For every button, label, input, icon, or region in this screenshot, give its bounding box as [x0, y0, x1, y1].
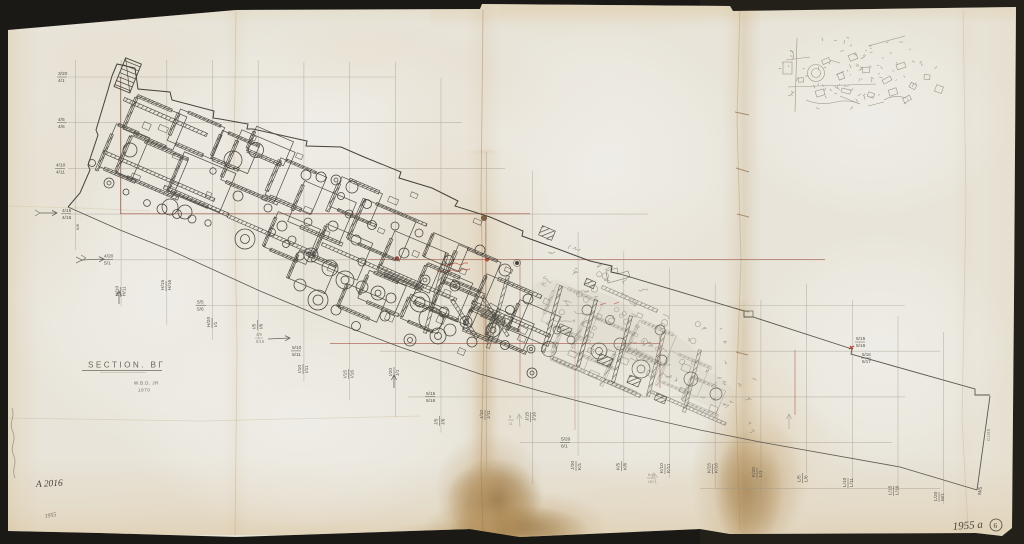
svg-text:J/5: J/5	[434, 418, 440, 425]
svg-text:5/15: 5/15	[856, 336, 866, 342]
svg-text:K/5: K/5	[616, 462, 622, 470]
svg-text:J/6: J/6	[441, 418, 447, 425]
svg-text:I/11: I/11	[304, 365, 310, 373]
svg-text:J/20: J/20	[570, 461, 576, 470]
svg-text:M/5: M/5	[977, 486, 984, 495]
svg-text:5/1: 5/1	[104, 261, 111, 267]
svg-text:4/1: 4/1	[58, 78, 65, 84]
svg-text:4/9: 4/9	[256, 332, 262, 337]
svg-text:K/15: K/15	[707, 463, 713, 473]
svg-text:A 2016: A 2016	[35, 479, 64, 490]
svg-text:1955 a: 1955 a	[952, 519, 984, 533]
svg-text:K/6: K/6	[75, 223, 80, 230]
svg-text:L/16: L/16	[895, 485, 901, 495]
svg-text:5/15: 5/15	[426, 391, 436, 397]
svg-text:5/10: 5/10	[292, 345, 302, 351]
svg-text:4/10: 4/10	[56, 163, 66, 169]
svg-text:5/17: 5/17	[862, 359, 871, 364]
svg-text:5/16: 5/16	[256, 339, 265, 344]
svg-text:L/1: L/1	[758, 470, 764, 477]
svg-text:I/5: I/5	[252, 323, 258, 329]
svg-text:K/1: K/1	[577, 462, 583, 470]
svg-text:K4: K4	[648, 472, 654, 477]
svg-text:M/1: M/1	[940, 493, 946, 501]
svg-text:K/6: K/6	[623, 462, 629, 470]
svg-text:4/16: 4/16	[62, 215, 72, 221]
svg-text:J/11: J/11	[486, 410, 492, 419]
svg-text:J/1: J/1	[395, 369, 401, 376]
svg-text:L/6: L/6	[804, 475, 810, 482]
svg-text:I/15: I/15	[343, 370, 349, 378]
svg-text:1970: 1970	[138, 388, 151, 393]
svg-text:L/11: L/11	[849, 478, 855, 487]
svg-text:4/15: 4/15	[62, 208, 72, 214]
svg-text:W.B.D. JR: W.B.D. JR	[134, 381, 159, 386]
svg-text:L/20: L/20	[933, 491, 939, 501]
svg-text:5/16: 5/16	[862, 352, 871, 357]
svg-text:H/15: H/15	[160, 280, 166, 290]
svg-text:CU49: CU49	[986, 428, 992, 441]
svg-text:H/10: H/10	[115, 286, 121, 296]
svg-text:K/10: K/10	[659, 463, 665, 473]
svg-text:H/16: H/16	[167, 280, 173, 290]
svg-text:4/20: 4/20	[104, 254, 114, 260]
svg-text:I/16: I/16	[350, 370, 356, 378]
svg-text:4/5: 4/5	[58, 117, 65, 123]
svg-text:3/20: 3/20	[58, 71, 68, 77]
svg-text:4/6: 4/6	[58, 124, 65, 130]
svg-text:L/15: L/15	[888, 485, 894, 495]
svg-text:H/20: H/20	[206, 317, 212, 327]
svg-text:5/6: 5/6	[197, 306, 204, 312]
svg-text:/10: /10	[648, 479, 654, 484]
svg-text:5/11: 5/11	[292, 352, 301, 358]
svg-text:L/10: L/10	[842, 477, 848, 487]
svg-text:6/1: 6/1	[561, 444, 568, 450]
svg-text:I/10: I/10	[297, 365, 303, 373]
svg-text:J/10: J/10	[479, 410, 485, 419]
svg-text:I/6: I/6	[259, 323, 265, 329]
svg-text:I/20: I/20	[388, 368, 394, 376]
svg-text:L/5: L/5	[797, 475, 803, 482]
svg-text:K/16: K/16	[714, 463, 720, 473]
svg-text:K/11: K/11	[666, 463, 672, 473]
svg-text:J/15: J/15	[525, 412, 531, 421]
svg-text:5/20: 5/20	[561, 437, 571, 443]
svg-text:5/16: 5/16	[426, 398, 436, 404]
svg-text:SECTION. BΓ: SECTION. BΓ	[88, 361, 165, 370]
svg-text:I/1: I/1	[213, 321, 219, 327]
svg-text:H/11: H/11	[122, 286, 128, 296]
svg-text:4/11: 4/11	[56, 170, 65, 176]
svg-text:5/5: 5/5	[197, 299, 204, 305]
svg-text:J/16: J/16	[532, 412, 538, 421]
svg-text:5/16: 5/16	[856, 343, 866, 349]
svg-text:6: 6	[994, 521, 998, 530]
svg-text:K/20: K/20	[751, 467, 757, 477]
